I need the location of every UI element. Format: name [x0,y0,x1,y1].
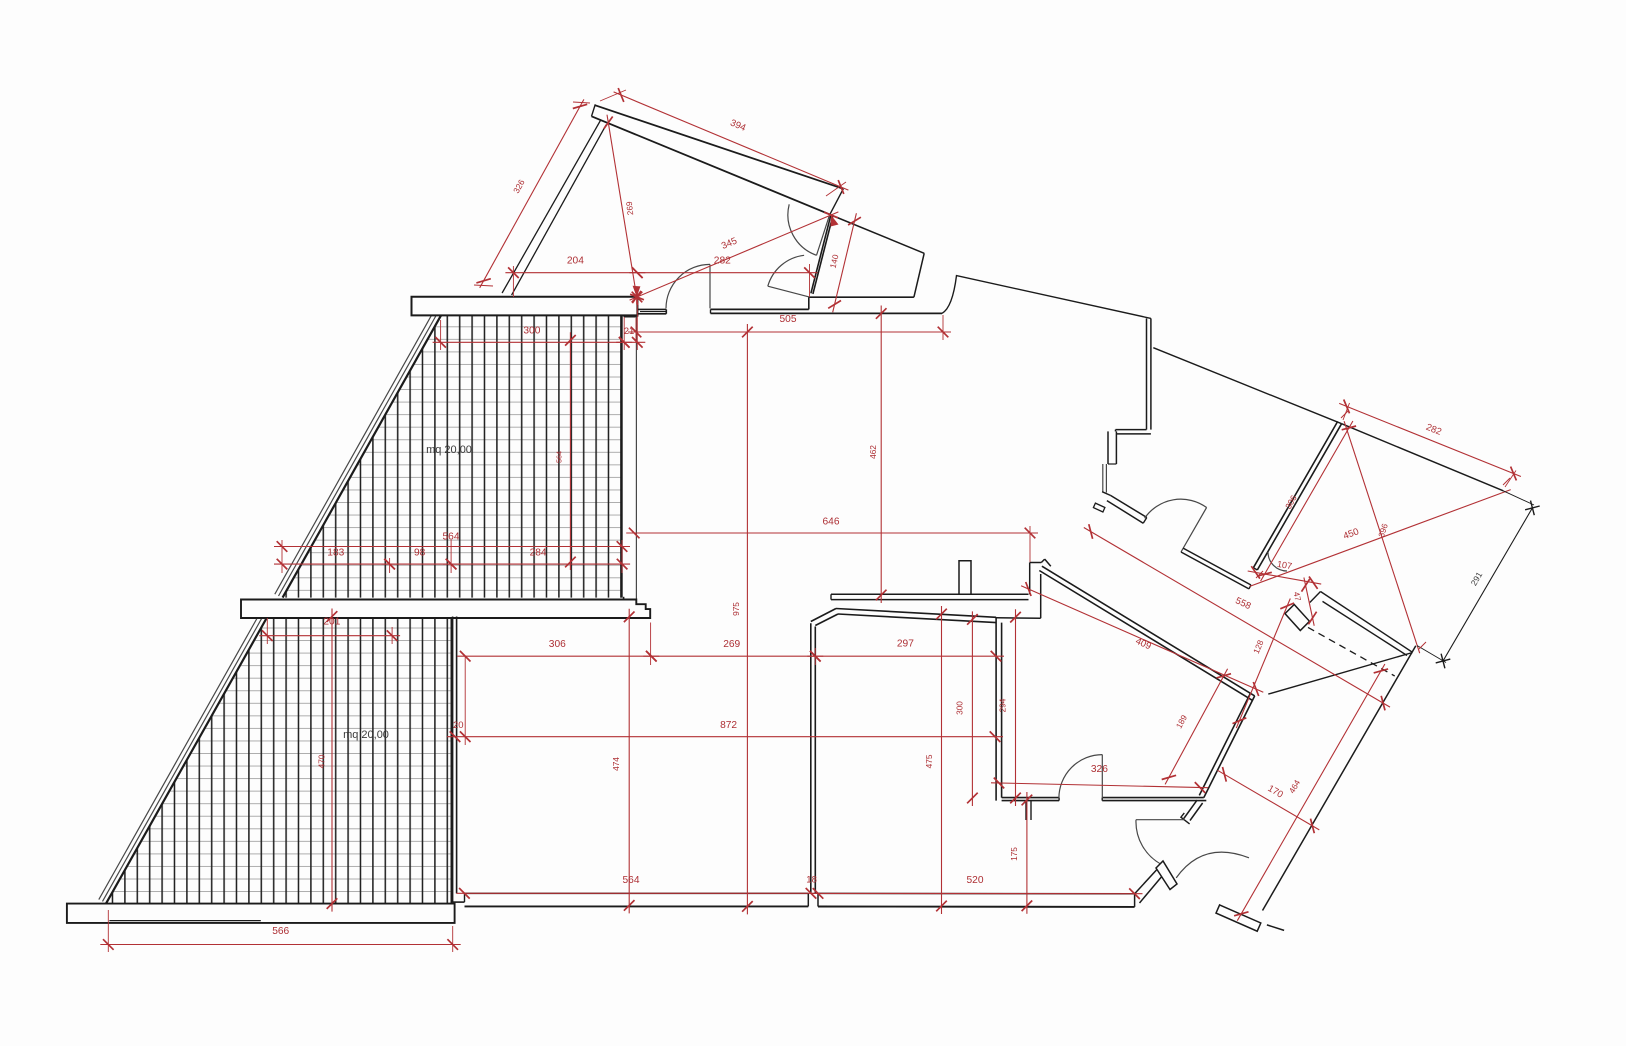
svg-text:183: 183 [327,548,344,559]
svg-text:300: 300 [955,701,965,715]
svg-text:20: 20 [453,720,464,731]
svg-text:269: 269 [723,639,740,650]
svg-text:204: 204 [567,256,584,267]
svg-text:646: 646 [823,516,840,527]
svg-text:872: 872 [720,720,737,731]
svg-text:470: 470 [317,754,327,768]
svg-text:mq 20,00: mq 20,00 [343,729,389,741]
svg-text:18: 18 [806,875,817,886]
svg-text:326: 326 [1091,764,1108,775]
svg-text:297: 297 [897,638,914,649]
svg-text:474: 474 [611,757,621,771]
svg-text:475: 475 [924,754,934,768]
svg-text:300: 300 [523,326,540,337]
svg-text:294: 294 [998,698,1008,712]
svg-text:564: 564 [623,875,640,886]
svg-text:284: 284 [530,548,547,559]
svg-text:520: 520 [967,875,984,886]
svg-text:566: 566 [272,926,289,937]
svg-text:269: 269 [624,201,635,216]
svg-text:505: 505 [780,314,797,325]
svg-text:306: 306 [549,639,566,650]
svg-text:975: 975 [731,602,741,616]
svg-text:564: 564 [555,451,564,463]
svg-text:98: 98 [414,548,426,559]
svg-text:21: 21 [624,326,635,337]
svg-text:282: 282 [714,256,731,267]
svg-text:175: 175 [1009,847,1019,861]
svg-text:462: 462 [868,445,878,459]
svg-text:mq 20,00: mq 20,00 [426,444,472,456]
